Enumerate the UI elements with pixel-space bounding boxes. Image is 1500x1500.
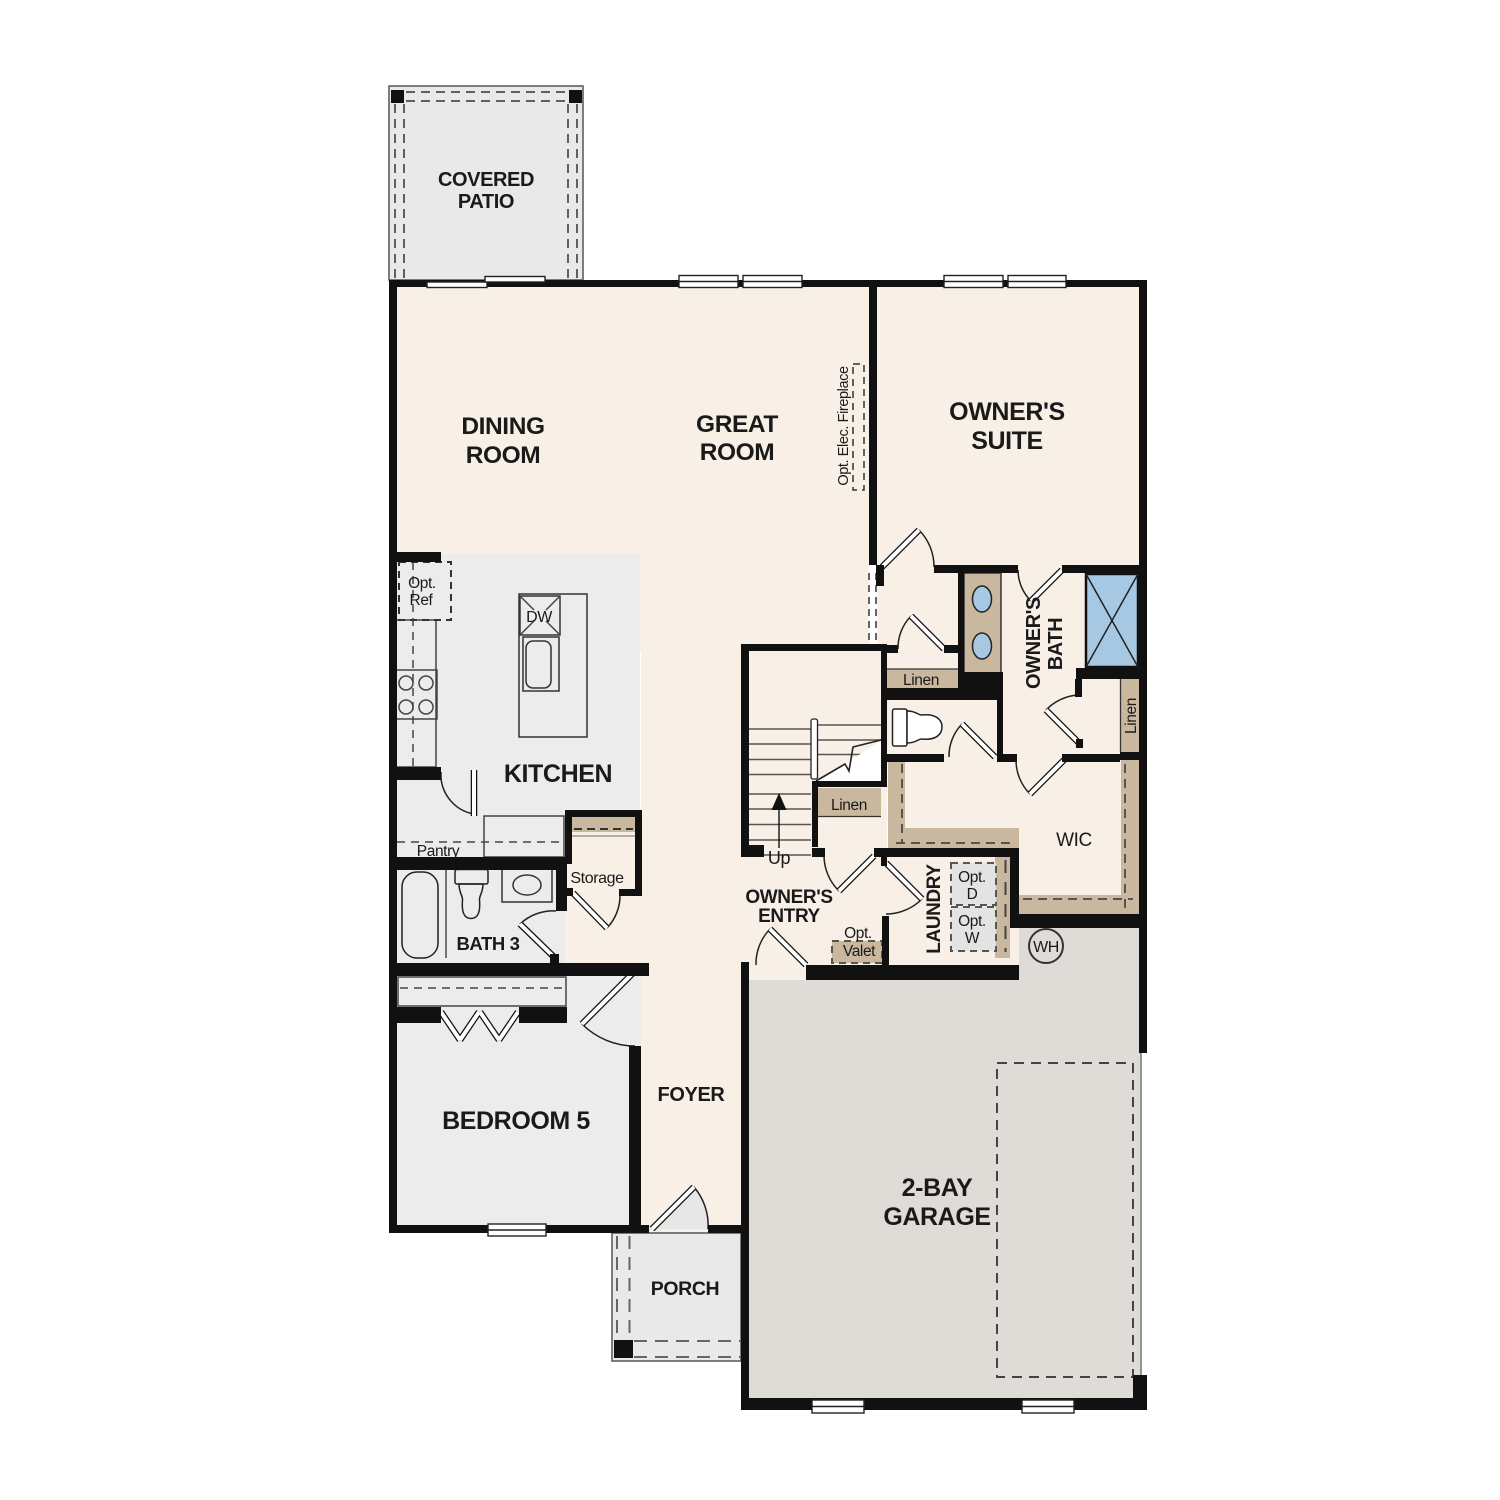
svg-text:COVERED: COVERED — [438, 169, 534, 191]
svg-text:BATH 3: BATH 3 — [456, 933, 519, 954]
svg-text:BATH: BATH — [1045, 618, 1067, 670]
svg-text:LAUNDRY: LAUNDRY — [924, 864, 945, 954]
svg-text:Opt.: Opt. — [408, 575, 436, 592]
svg-text:GARAGE: GARAGE — [883, 1203, 990, 1231]
svg-text:Linen: Linen — [903, 672, 939, 689]
svg-text:DW: DW — [526, 609, 553, 626]
svg-text:Opt.: Opt. — [844, 925, 872, 942]
svg-text:W: W — [965, 930, 980, 947]
svg-text:PORCH: PORCH — [651, 1278, 719, 1300]
svg-text:Valet: Valet — [843, 943, 876, 960]
svg-text:OWNER'S: OWNER'S — [949, 398, 1065, 426]
svg-text:ROOM: ROOM — [700, 439, 775, 466]
svg-text:Pantry: Pantry — [417, 843, 460, 860]
svg-text:OWNER'S: OWNER'S — [745, 887, 832, 908]
svg-text:Opt. Elec. Fireplace: Opt. Elec. Fireplace — [836, 366, 852, 486]
svg-text:Up: Up — [768, 848, 791, 868]
svg-text:Ref: Ref — [410, 592, 434, 609]
svg-text:ROOM: ROOM — [466, 442, 541, 469]
svg-text:SUITE: SUITE — [971, 427, 1043, 455]
svg-text:BEDROOM 5: BEDROOM 5 — [442, 1107, 590, 1135]
svg-text:ENTRY: ENTRY — [758, 906, 820, 927]
svg-text:PATIO: PATIO — [458, 191, 514, 213]
svg-text:D: D — [967, 886, 978, 903]
svg-text:Storage: Storage — [570, 870, 624, 887]
svg-text:WH: WH — [1033, 939, 1059, 956]
svg-text:Linen: Linen — [831, 797, 867, 814]
svg-text:DINING: DINING — [461, 413, 544, 440]
svg-text:Linen: Linen — [1123, 698, 1140, 734]
svg-text:FOYER: FOYER — [658, 1084, 726, 1106]
svg-text:Opt.: Opt. — [958, 913, 986, 930]
svg-text:GREAT: GREAT — [696, 411, 778, 438]
svg-text:OWNER'S: OWNER'S — [1023, 597, 1045, 689]
svg-text:KITCHEN: KITCHEN — [504, 760, 612, 788]
svg-text:2-BAY: 2-BAY — [902, 1174, 973, 1202]
svg-text:Opt.: Opt. — [958, 869, 986, 886]
svg-text:WIC: WIC — [1056, 830, 1092, 851]
